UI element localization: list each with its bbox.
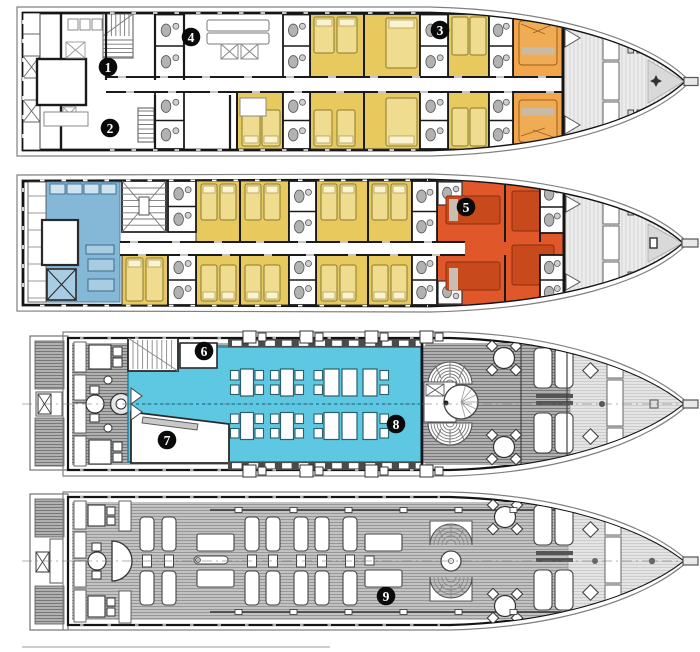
svg-text:5: 5 <box>463 200 470 215</box>
svg-text:4: 4 <box>188 30 195 45</box>
svg-text:6: 6 <box>201 344 208 359</box>
svg-text:9: 9 <box>383 589 390 604</box>
svg-text:3: 3 <box>437 23 444 38</box>
svg-text:1: 1 <box>105 60 112 75</box>
svg-text:2: 2 <box>107 121 114 136</box>
svg-text:7: 7 <box>164 433 171 448</box>
svg-text:8: 8 <box>393 417 400 432</box>
